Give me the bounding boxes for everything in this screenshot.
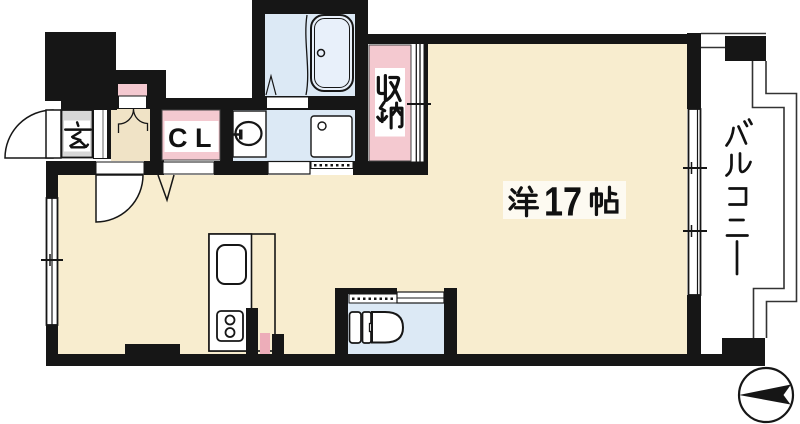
svg-text:C L: C L <box>168 123 212 153</box>
svg-text:17: 17 <box>544 179 582 225</box>
